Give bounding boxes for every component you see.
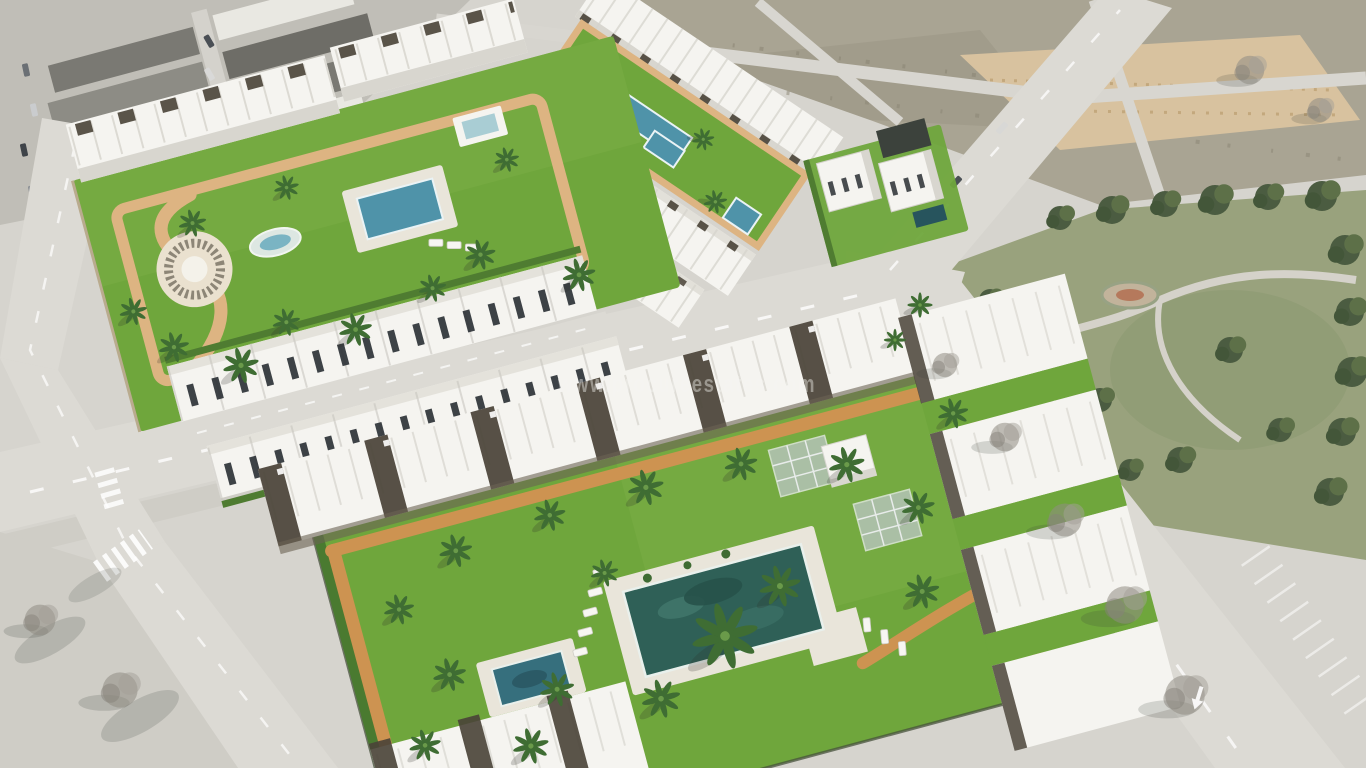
render-canvas: www.procureestates.com [0,0,1366,768]
watermark: www.procureestates.com [557,371,816,398]
aerial-render-image: www.procureestates.com [0,0,1366,768]
